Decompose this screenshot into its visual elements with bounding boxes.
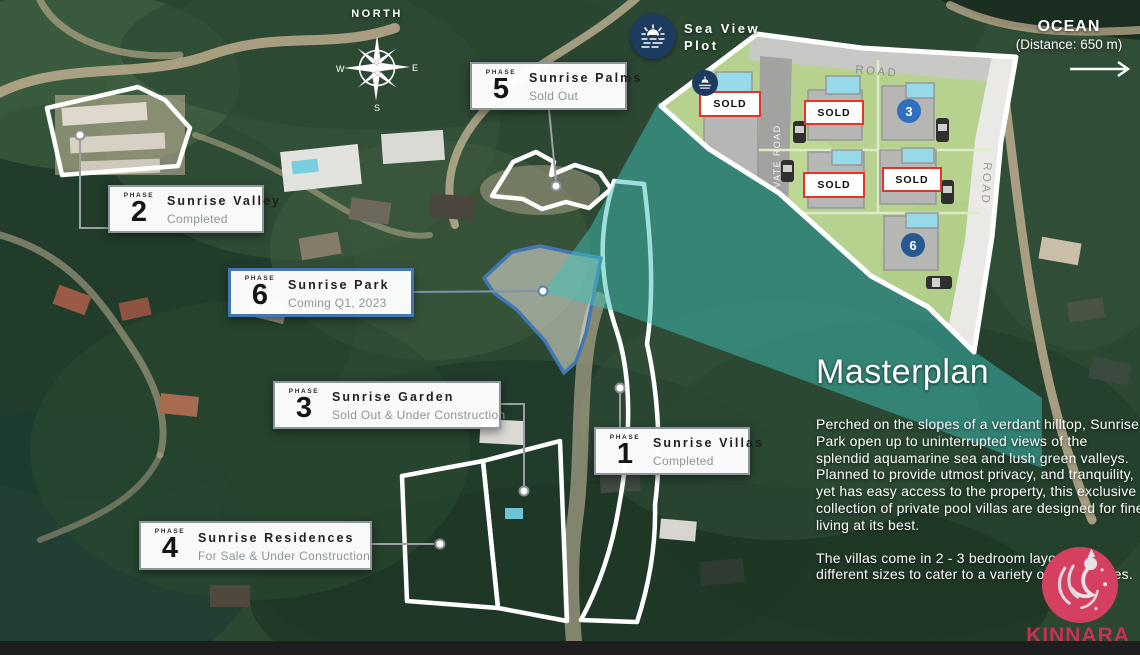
phase-status: For Sale & Under Construction [198, 549, 370, 563]
phase-box-6: PHASE 6 Sunrise Park Coming Q1, 2023 [228, 268, 414, 317]
sold-badge: SOLD [804, 100, 864, 125]
ocean-label: OCEAN [1000, 18, 1138, 36]
masterplan-paragraph-1: Perched on the slopes of a verdant hillt… [816, 416, 1140, 534]
phase-status: Completed [653, 454, 764, 468]
phase-number: 6 [241, 282, 279, 310]
phase-box-2: PHASE 2 Sunrise Valley Completed [108, 185, 264, 233]
sea-view-icon [637, 20, 669, 52]
phase-number: 3 [285, 395, 323, 423]
phase-name: Sunrise Villas [653, 436, 764, 450]
phase-name: Sunrise Park [288, 278, 390, 292]
phase-number: 5 [482, 76, 520, 104]
phase-name: Sunrise Valley [167, 194, 281, 208]
phase-number: 2 [120, 199, 158, 227]
sea-view-badge [630, 13, 676, 59]
ocean-arrow-icon [1068, 60, 1134, 78]
phase-box-1: PHASE 1 Sunrise Villas Completed [594, 427, 750, 475]
phase-name: Sunrise Garden [332, 390, 455, 404]
bottom-bar [0, 641, 1140, 655]
sea-view-mini-icon [696, 74, 714, 92]
sold-badge: SOLD [882, 167, 942, 192]
phase-status: Coming Q1, 2023 [288, 296, 390, 310]
phase-name: Sunrise Palms [529, 71, 642, 85]
compass-east-label: E [412, 63, 418, 73]
compass-rose-icon: W E S [333, 20, 421, 112]
kinnara-logo [1042, 547, 1118, 623]
masterplan-page: ROAD ROAD PRIVATE ROAD NORTH [0, 0, 1140, 655]
road-label-right: ROAD [979, 162, 993, 206]
plot-number-3: 3 [897, 99, 921, 123]
phase-name: Sunrise Residences [198, 531, 355, 545]
phase-status: Sold Out [529, 89, 642, 103]
north-label: NORTH [333, 8, 421, 20]
phase-box-3: PHASE 3 Sunrise Garden Sold Out & Under … [273, 381, 501, 429]
compass-west-label: W [336, 64, 345, 74]
compass: NORTH W E S [333, 8, 421, 117]
phase-box-4: PHASE 4 Sunrise Residences For Sale & Un… [139, 521, 372, 570]
phase-number: 4 [151, 535, 189, 563]
plot-number-6: 6 [901, 233, 925, 257]
ocean-distance: (Distance: 650 m) [1000, 37, 1138, 52]
sea-view-label: Sea View Plot [684, 21, 760, 55]
kinnara-figure-icon [1042, 547, 1118, 623]
inset-sea-view-mini-badge [692, 70, 718, 96]
ocean-indicator: OCEAN (Distance: 650 m) [1000, 18, 1138, 78]
compass-south-label: S [374, 103, 380, 112]
sold-badge: SOLD [803, 172, 865, 198]
masterplan-title: Masterplan [816, 353, 1140, 392]
phase-status: Sold Out & Under Construction [332, 408, 505, 422]
phase-status: Completed [167, 212, 281, 226]
phase-number: 1 [606, 441, 644, 469]
phase-box-5: PHASE 5 Sunrise Palms Sold Out [470, 62, 627, 110]
